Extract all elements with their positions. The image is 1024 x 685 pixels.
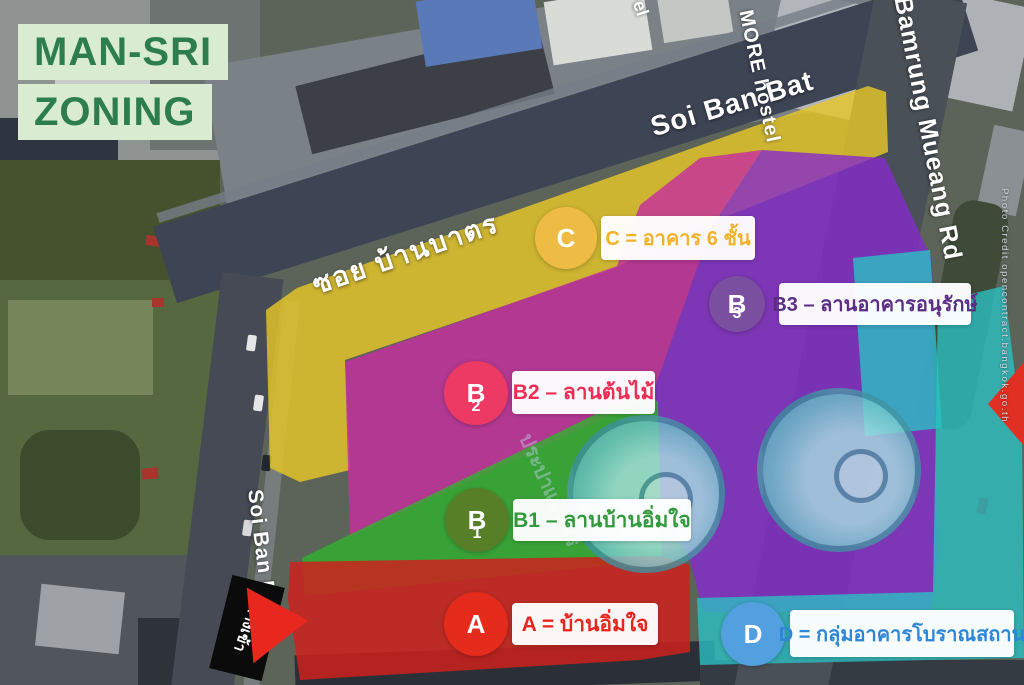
badge-letter: C [557,223,576,254]
badge-subscript: 3 [733,305,742,323]
photo-credit: Photo Credit opencontract.bangkok.go.th [999,188,1010,423]
zone-badge-b1: B1 [445,488,509,552]
map-title-line1: MAN-SRI [18,24,228,80]
zone-label-c: C = อาคาร 6 ชั้น [601,216,755,260]
zone-badge-b2: B2 [444,361,508,425]
badge-subscript: 2 [472,398,481,416]
map-title-line2: ZONING [18,84,212,140]
building-block [35,584,125,654]
badge-letter: A [467,609,486,640]
tree-clump [20,430,140,540]
zone-label-a: A = บ้านอิ่มใจ [512,603,658,645]
zone-label-d: D = กลุ่มอาคารโบราณสถาน [790,610,1014,657]
vacant-green-lot [8,300,153,395]
zone-label-b1: B1 – ลานบ้านอิ่มใจ [513,499,691,541]
red-roof [141,467,158,480]
zone-badge-c: C [535,207,597,269]
zoning-map: ซอย บ้านบาตร Soi Ban Bat MORE hostel el … [0,0,1024,685]
zone-badge-a: A [444,592,508,656]
entrance-arrow-icon [247,583,311,664]
badge-letter: D [744,619,763,650]
zone-label-b3: B3 – ลานอาคารอนุรักษ์ [779,283,971,325]
water-tank-structure [757,388,921,552]
red-roof [152,298,164,307]
zone-badge-d: D [721,602,785,666]
water-tank-structure [567,415,725,573]
zone-badge-b3: B3 [709,276,765,332]
zone-label-b2: B2 – ลานต้นไม้ [512,371,655,414]
badge-subscript: 1 [473,525,482,543]
